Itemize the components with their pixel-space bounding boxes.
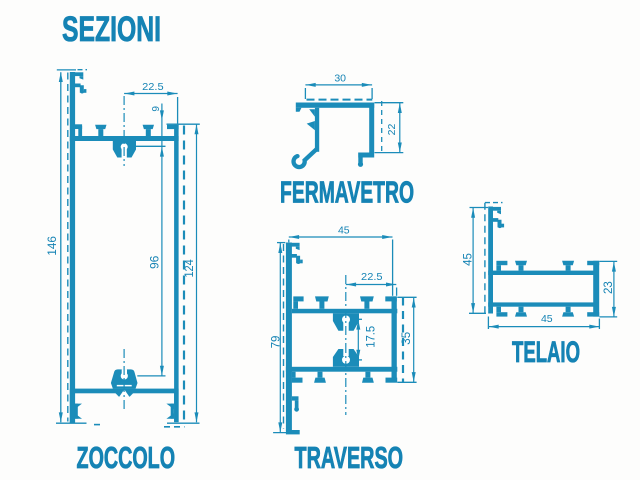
svg-text:96: 96 [150, 256, 162, 269]
svg-text:124: 124 [184, 259, 196, 278]
svg-text:SEZIONI: SEZIONI [62, 10, 161, 49]
svg-text:ZOCCOLO: ZOCCOLO [77, 440, 176, 475]
svg-text:TELAIO: TELAIO [512, 336, 580, 369]
svg-text:45: 45 [541, 313, 553, 325]
svg-text:45: 45 [463, 253, 475, 266]
svg-text:22.5: 22.5 [361, 271, 383, 283]
svg-text:FERMAVETRO: FERMAVETRO [280, 175, 414, 210]
svg-text:22: 22 [386, 124, 398, 136]
svg-text:23: 23 [603, 281, 615, 294]
svg-text:17.5: 17.5 [365, 326, 377, 348]
svg-text:79: 79 [270, 336, 282, 349]
svg-text:9: 9 [151, 106, 162, 112]
svg-text:22.5: 22.5 [142, 81, 164, 93]
svg-text:30: 30 [334, 73, 346, 85]
svg-text:45: 45 [338, 225, 350, 237]
svg-text:146: 146 [47, 236, 59, 256]
svg-text:TRAVERSO: TRAVERSO [295, 440, 404, 475]
